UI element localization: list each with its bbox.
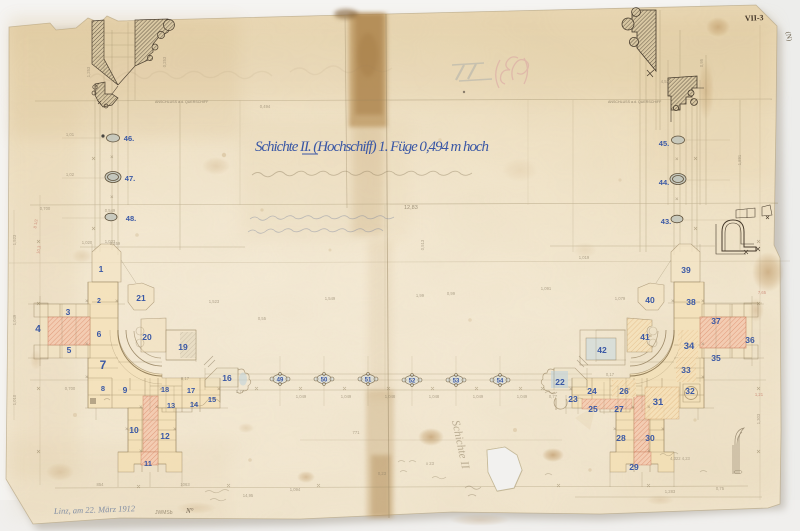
svg-text:1,891: 1,891 — [737, 154, 742, 165]
svg-text:1,019: 1,019 — [579, 255, 590, 260]
svg-text:1,049: 1,049 — [12, 314, 17, 325]
svg-text:49: 49 — [277, 378, 284, 384]
svg-text:46.: 46. — [124, 134, 134, 143]
svg-text:16: 16 — [222, 373, 232, 383]
svg-text:11: 11 — [144, 459, 152, 468]
svg-text:771: 771 — [353, 430, 361, 435]
svg-text:4: 4 — [35, 324, 41, 335]
svg-text:x 23: x 23 — [426, 461, 435, 466]
svg-text:2: 2 — [97, 298, 101, 305]
svg-text:ANSCHLUSS a.d. QUERSCHIFF: ANSCHLUSS a.d. QUERSCHIFF — [155, 100, 209, 104]
svg-text:40: 40 — [645, 295, 655, 305]
svg-text:42: 42 — [597, 345, 607, 355]
svg-text:53: 53 — [453, 379, 460, 385]
svg-text:4,524: 4,524 — [661, 79, 672, 84]
svg-text:30: 30 — [645, 433, 655, 443]
svg-text:43.: 43. — [661, 217, 671, 226]
svg-text:1,094: 1,094 — [290, 487, 301, 492]
svg-text:47.: 47. — [125, 174, 135, 183]
svg-text:44.: 44. — [659, 178, 669, 187]
svg-text:21: 21 — [136, 293, 146, 303]
svg-text:0,99: 0,99 — [447, 291, 456, 296]
svg-text:1,253: 1,253 — [86, 66, 91, 77]
svg-text:N°: N° — [185, 507, 194, 515]
svg-text:12,83: 12,83 — [404, 205, 418, 211]
svg-text:32: 32 — [685, 386, 695, 396]
svg-text:24: 24 — [587, 386, 597, 396]
svg-text:25: 25 — [588, 404, 598, 414]
svg-text:1,523: 1,523 — [12, 234, 17, 245]
svg-text:38: 38 — [686, 297, 696, 307]
svg-text:6: 6 — [97, 329, 102, 339]
svg-text:1: 1 — [99, 264, 104, 274]
svg-text:0,513: 0,513 — [420, 239, 425, 250]
svg-text:1,283: 1,283 — [665, 489, 676, 494]
svg-text:45.: 45. — [659, 139, 669, 148]
svg-text:ANSCHLUSS a.d. QUERSCHIFF: ANSCHLUSS a.d. QUERSCHIFF — [608, 100, 662, 104]
svg-text:39: 39 — [681, 265, 691, 275]
svg-text:3: 3 — [66, 307, 71, 317]
svg-text:0,23: 0,23 — [378, 471, 387, 476]
svg-text:23: 23 — [568, 394, 578, 404]
svg-text:51: 51 — [365, 378, 372, 384]
svg-text:33: 33 — [681, 365, 691, 375]
svg-text:41: 41 — [640, 332, 650, 342]
svg-text:9: 9 — [123, 385, 128, 395]
svg-text:22: 22 — [555, 377, 565, 387]
svg-text:0,700: 0,700 — [65, 386, 76, 391]
svg-text:7,65: 7,65 — [758, 290, 767, 295]
svg-text:34: 34 — [684, 341, 695, 352]
svg-text:0,494: 0,494 — [260, 104, 271, 109]
svg-text:JWMSb: JWMSb — [155, 510, 173, 516]
svg-text:1,049: 1,049 — [517, 394, 528, 399]
svg-text:1,549: 1,549 — [325, 296, 336, 301]
svg-text:0,75: 0,75 — [716, 486, 725, 491]
svg-text:1,048: 1,048 — [385, 394, 396, 399]
svg-text:VII-3: VII-3 — [745, 13, 764, 23]
svg-text:4,322 4,23: 4,322 4,23 — [670, 456, 690, 461]
svg-text:0,17: 0,17 — [606, 372, 615, 377]
svg-text:20: 20 — [142, 332, 152, 342]
svg-text:26: 26 — [619, 386, 629, 396]
svg-text:14,95: 14,95 — [243, 493, 254, 498]
svg-text:0,459: 0,459 — [110, 241, 121, 246]
svg-text:1,523: 1,523 — [209, 299, 220, 304]
svg-text:1,303: 1,303 — [756, 413, 761, 424]
svg-text:1,01: 1,01 — [66, 132, 75, 137]
svg-text:50: 50 — [321, 378, 328, 384]
svg-text:28: 28 — [616, 433, 626, 443]
svg-text:10: 10 — [129, 425, 139, 435]
svg-text:1,02: 1,02 — [66, 172, 75, 177]
svg-text:1,079: 1,079 — [615, 296, 626, 301]
svg-text:0,77: 0,77 — [236, 389, 245, 394]
svg-text:0,55: 0,55 — [258, 316, 267, 321]
svg-text:1,99: 1,99 — [416, 293, 425, 298]
svg-text:27: 27 — [614, 404, 624, 414]
svg-text:31: 31 — [653, 397, 664, 408]
svg-text:1,091: 1,091 — [541, 286, 552, 291]
svg-text:0,17: 0,17 — [181, 376, 190, 381]
svg-text:54: 54 — [497, 379, 504, 385]
svg-text:15: 15 — [208, 395, 216, 404]
svg-text:19: 19 — [178, 342, 188, 352]
svg-text:5: 5 — [67, 345, 72, 355]
svg-text:0,549: 0,549 — [105, 208, 116, 213]
svg-text:854: 854 — [97, 482, 105, 487]
svg-text:52: 52 — [409, 379, 416, 385]
svg-text:36: 36 — [745, 335, 755, 345]
svg-text:Schichte II. (Hochschiff) 1. F: Schichte II. (Hochschiff) 1. Füge 0,494 … — [255, 139, 489, 155]
svg-text:29: 29 — [629, 462, 639, 472]
svg-text:0,700: 0,700 — [40, 206, 51, 211]
svg-text:1,049: 1,049 — [473, 394, 484, 399]
svg-text:18: 18 — [161, 385, 169, 394]
svg-text:1,048: 1,048 — [429, 394, 440, 399]
svg-text:0,95: 0,95 — [699, 58, 704, 67]
svg-text:48.: 48. — [126, 214, 136, 223]
svg-text:1,049: 1,049 — [296, 394, 307, 399]
svg-text:1,21: 1,21 — [755, 392, 764, 397]
svg-text:1,020: 1,020 — [82, 240, 93, 245]
svg-text:1,010: 1,010 — [12, 394, 17, 405]
svg-text:0,253: 0,253 — [162, 56, 167, 67]
svg-text:7: 7 — [100, 358, 107, 372]
svg-text:17: 17 — [187, 386, 195, 395]
svg-text:8: 8 — [101, 384, 105, 393]
svg-text:14: 14 — [190, 400, 199, 409]
svg-text:12: 12 — [160, 431, 170, 441]
svg-text:0,77: 0,77 — [549, 394, 558, 399]
svg-text:1,049: 1,049 — [341, 394, 352, 399]
